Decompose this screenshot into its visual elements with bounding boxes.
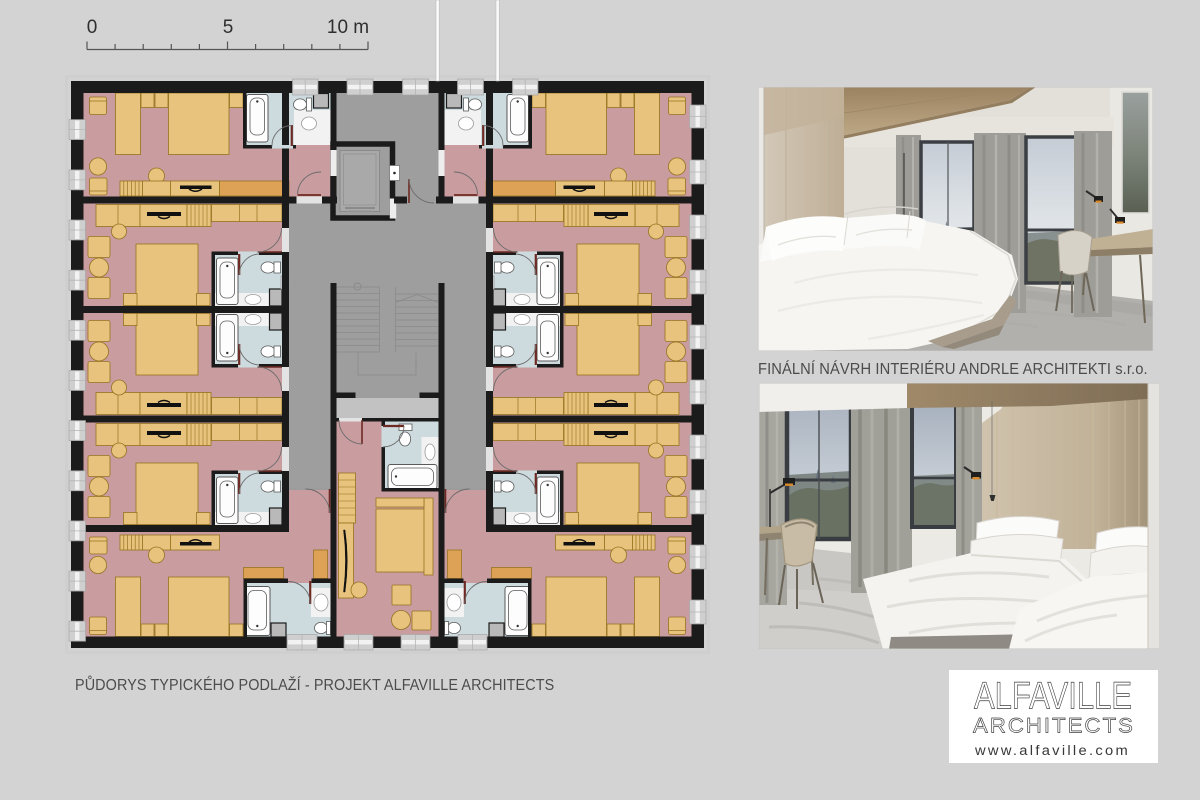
- svg-text:5: 5: [223, 17, 234, 38]
- svg-text:0: 0: [87, 17, 98, 38]
- svg-text:www.alfaville.com: www.alfaville.com: [974, 743, 1130, 758]
- svg-text:ALFAVILLE: ALFAVILLE: [974, 676, 1132, 718]
- svg-text:ARCHITECTS: ARCHITECTS: [973, 715, 1135, 738]
- svg-text:10 m: 10 m: [327, 17, 369, 38]
